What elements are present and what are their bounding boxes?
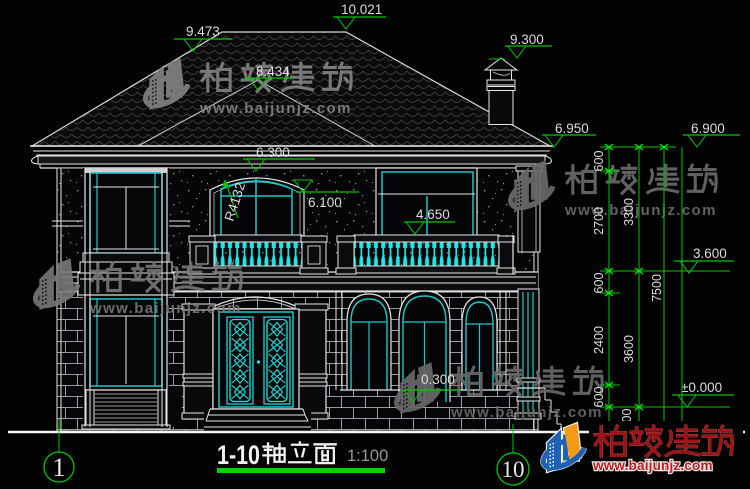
svg-text:www.baijunjz.com: www.baijunjz.com xyxy=(564,202,717,219)
svg-text:9.473: 9.473 xyxy=(186,24,220,39)
svg-text:10: 10 xyxy=(502,457,525,482)
svg-text:www.baijunjz.com: www.baijunjz.com xyxy=(450,404,603,421)
svg-text:3600: 3600 xyxy=(622,335,636,363)
svg-text:6.950: 6.950 xyxy=(555,121,589,136)
svg-text:www.baijunjz.com: www.baijunjz.com xyxy=(89,300,242,317)
svg-text:2400: 2400 xyxy=(592,326,606,354)
svg-text:3.600: 3.600 xyxy=(693,246,727,261)
svg-text:www.baijunjz.com: www.baijunjz.com xyxy=(592,458,713,473)
svg-text:600: 600 xyxy=(592,273,606,294)
svg-text:4.650: 4.650 xyxy=(416,207,450,222)
svg-text:6.900: 6.900 xyxy=(691,121,725,136)
svg-text:7500: 7500 xyxy=(650,274,664,302)
svg-text:9.300: 9.300 xyxy=(510,32,544,47)
svg-text:6.300: 6.300 xyxy=(256,145,290,160)
svg-text:6.100: 6.100 xyxy=(308,195,342,210)
svg-text:2700: 2700 xyxy=(592,207,606,235)
svg-text:3300: 3300 xyxy=(622,198,636,226)
svg-text:600: 600 xyxy=(592,151,606,172)
svg-text:±0.000: ±0.000 xyxy=(681,380,722,395)
svg-text:www.baijunjz.com: www.baijunjz.com xyxy=(199,100,352,117)
svg-text:1:100: 1:100 xyxy=(347,447,388,465)
svg-text:1-10: 1-10 xyxy=(217,440,260,470)
svg-text:10.021: 10.021 xyxy=(341,2,382,17)
svg-text:0.300: 0.300 xyxy=(421,372,455,387)
svg-text:600: 600 xyxy=(592,387,606,408)
svg-text:8.434: 8.434 xyxy=(256,64,290,79)
svg-text:1: 1 xyxy=(53,453,66,482)
